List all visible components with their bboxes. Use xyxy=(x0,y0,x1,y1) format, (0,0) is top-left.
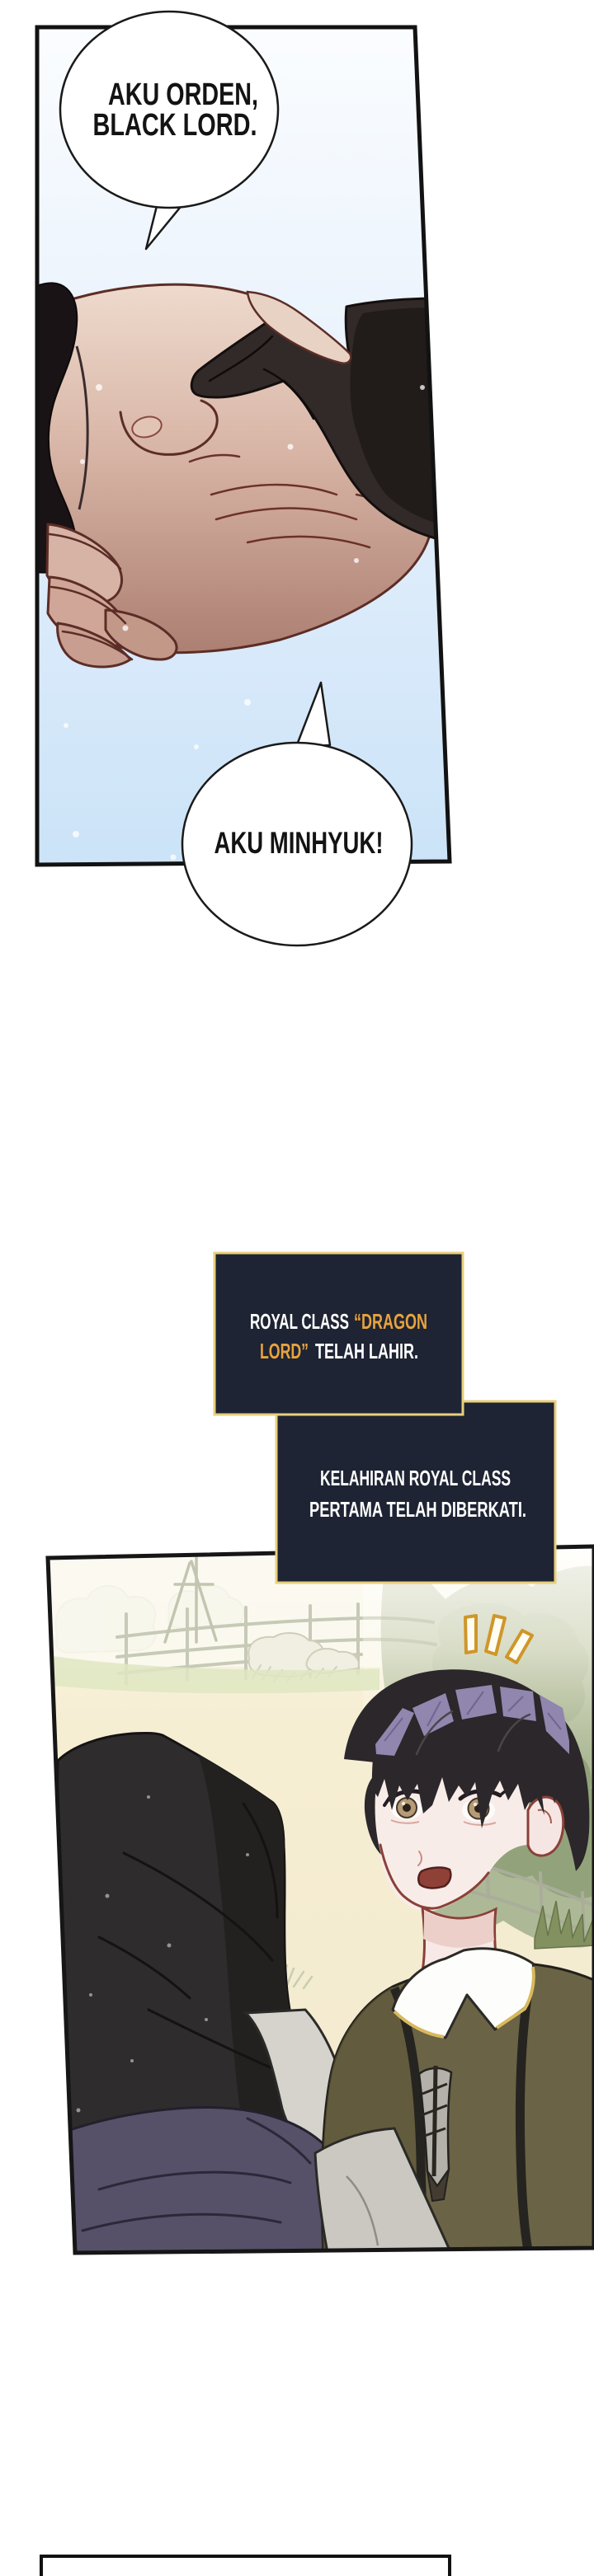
svg-text:BLACK LORD.: BLACK LORD. xyxy=(93,108,257,143)
svg-text:ROYAL CLASS: ROYAL CLASS xyxy=(250,1309,349,1334)
svg-text:TELAH LAHIR.: TELAH LAHIR. xyxy=(315,1339,418,1363)
svg-text:KELAHIRAN ROYAL CLASS: KELAHIRAN ROYAL CLASS xyxy=(320,1466,511,1490)
svg-text:LORD”: LORD” xyxy=(260,1339,309,1363)
svg-text:AKU ORDEN,: AKU ORDEN, xyxy=(108,77,258,112)
svg-text:“DRAGON: “DRAGON xyxy=(354,1309,427,1334)
svg-text:AKU MINHYUK!: AKU MINHYUK! xyxy=(214,826,384,860)
svg-text:PERTAMA TELAH DIBERKATI.: PERTAMA TELAH DIBERKATI. xyxy=(309,1497,526,1522)
